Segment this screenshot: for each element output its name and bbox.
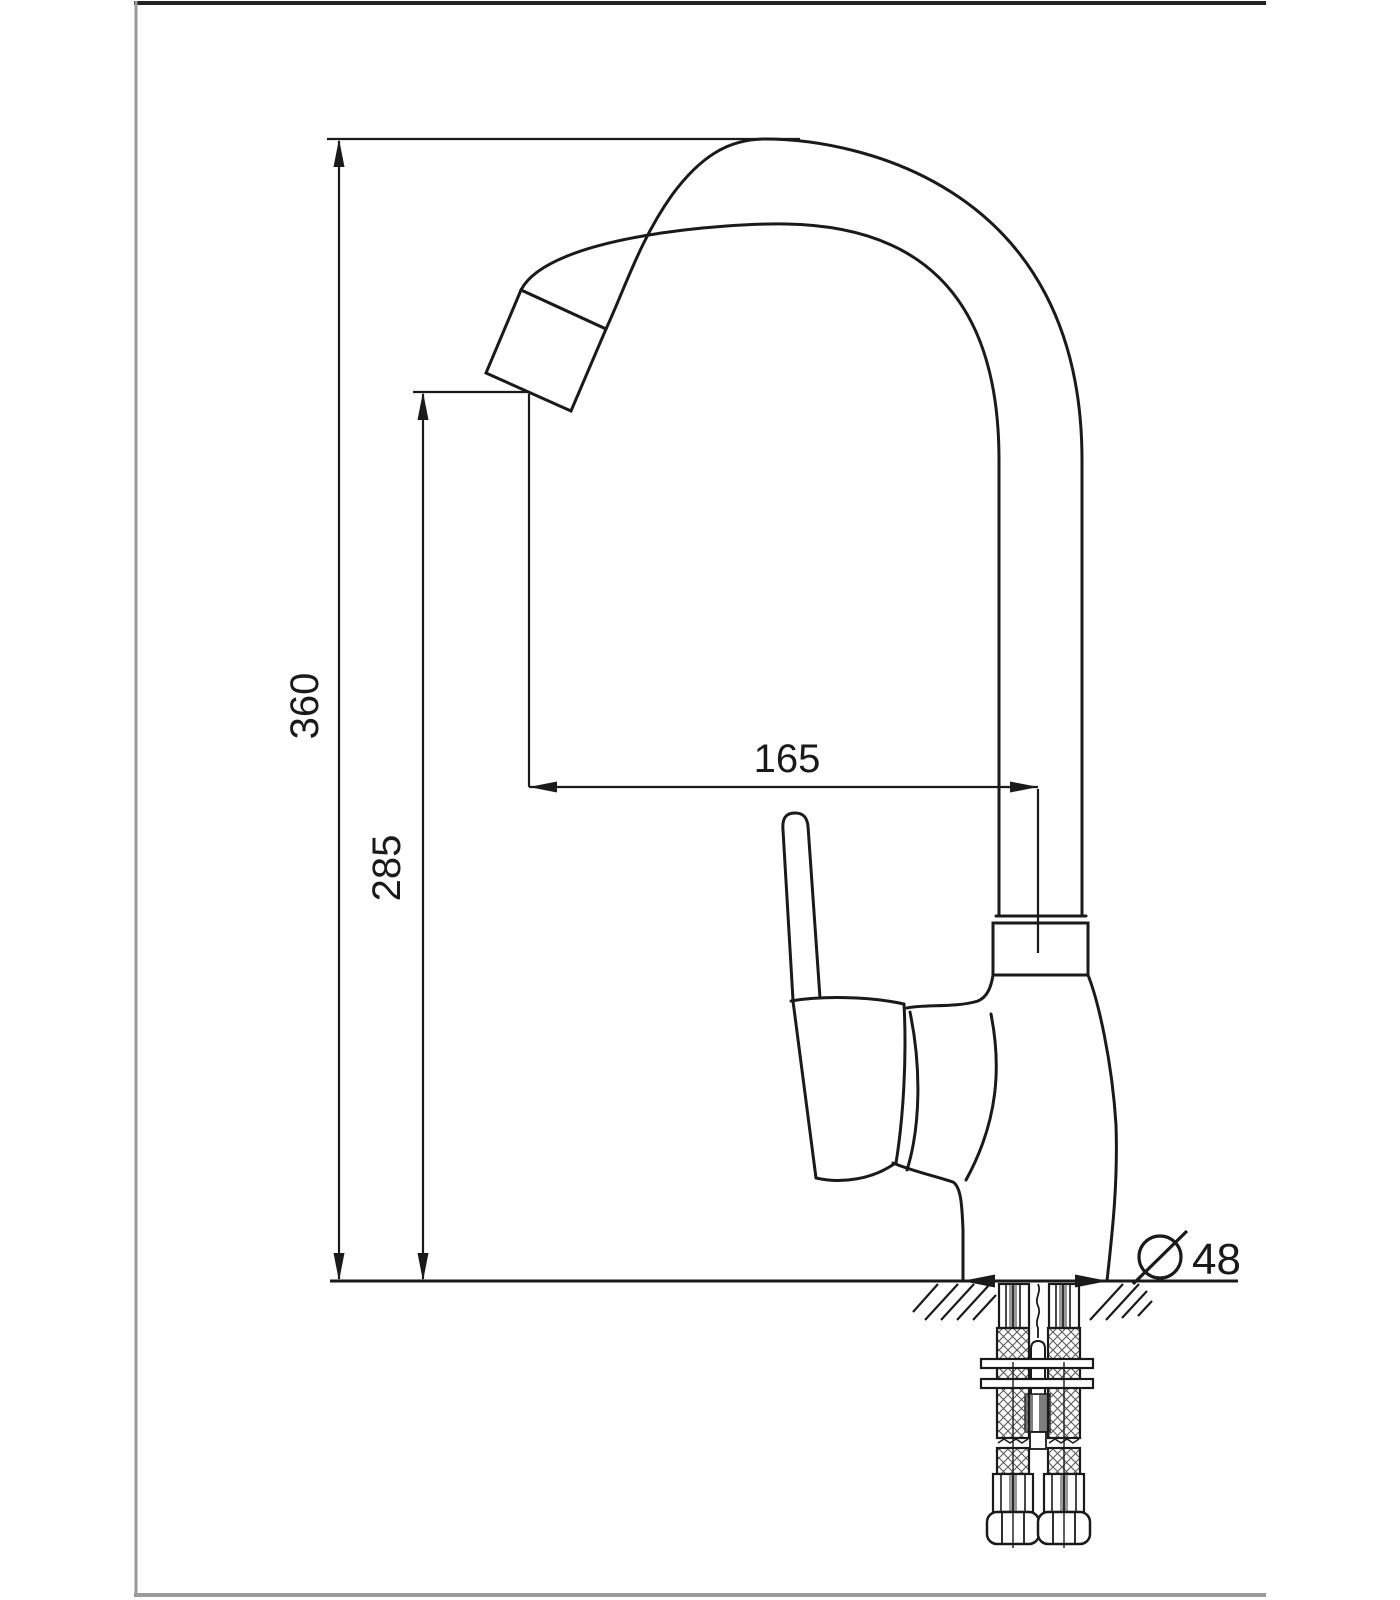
faucet-handle [783,813,905,1180]
faucet-spout [486,139,1082,916]
tailpiece-right [1049,1284,1079,1328]
dimension-48-label: 48 [1192,1235,1241,1284]
body-front-curve [966,1014,996,1180]
dimension-165-label: 165 [754,737,821,781]
spout-tube-outline [521,139,1082,916]
dim-360-arrow-down [334,1253,345,1281]
faucet-body [893,916,1116,1281]
base-arrow-left [962,1275,995,1288]
handle-top-joint [791,998,904,1004]
countertop [330,1281,1238,1320]
dimension-spout-height: 285 [365,392,529,1281]
drawing-frame [134,1,1266,1597]
handle-right-edge [896,1004,905,1163]
mounting-plate-upper [981,1359,1093,1368]
mounting-plate-lower [981,1379,1093,1388]
countertop-hatching-right [1090,1284,1152,1320]
handle-lever [783,813,820,1000]
dim-165-arrow-left [529,782,557,793]
handle-bottom-edge [816,1164,894,1180]
stud-thread-squiggle [1037,1284,1039,1338]
body-shoulder [907,975,993,1008]
body-right-profile [1088,975,1116,1281]
dim-285-arrow-down [418,1253,429,1281]
product-drawing-page: 360 285 165 48 [0,0,1400,1600]
stud-end-piece [1030,1432,1046,1449]
stud-nut-highlight [1033,1395,1039,1431]
dim-285-arrow-up [418,392,429,420]
dim-360-arrow-up [334,139,345,167]
dimension-spout-reach: 165 [529,394,1038,953]
dimension-base-diameter: 48 [962,1231,1241,1288]
body-collar [993,923,1088,975]
tailpiece-left [999,1284,1029,1328]
faucet-technical-drawing: 360 285 165 48 [0,0,1400,1600]
diameter-symbol-icon [1133,1231,1187,1284]
handle-left-edge [793,1001,816,1178]
body-behind-handle-edge [907,1012,918,1170]
dimension-285-label: 285 [365,835,409,902]
dimension-360-label: 360 [283,673,327,740]
base-arrow-right [1075,1275,1108,1288]
countertop-hatching-left [913,1284,996,1320]
body-left-profile [893,1163,963,1281]
